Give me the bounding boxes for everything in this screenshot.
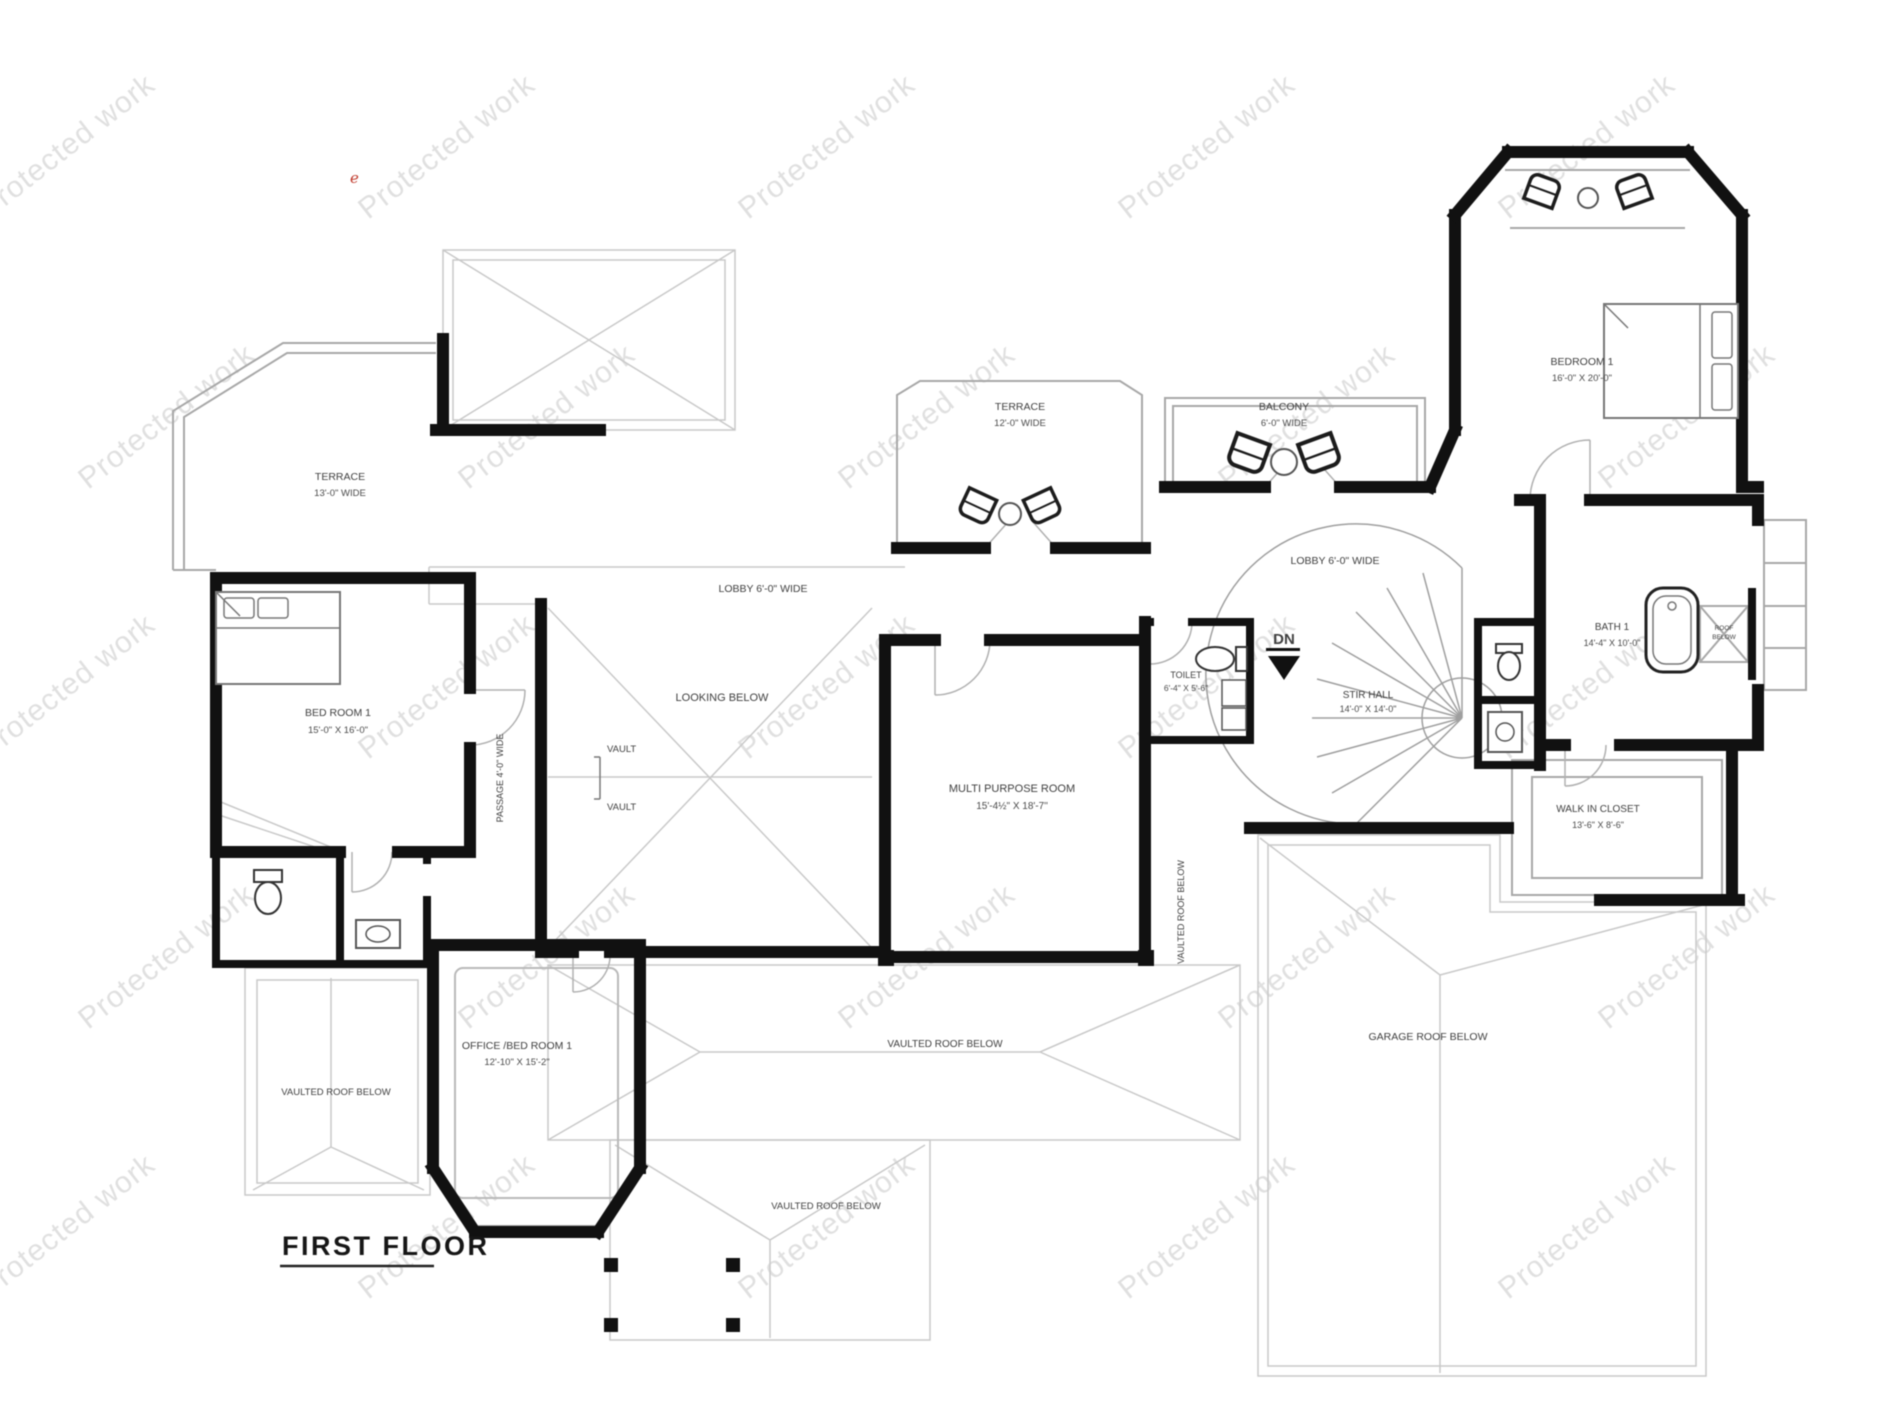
label-terrace-center-name: TERRACE: [995, 401, 1045, 413]
table-icon: [1271, 449, 1297, 475]
label-terrace-left-name: TERRACE: [315, 471, 365, 483]
label-vaulted-roof-vertical: VAULTED ROOF BELOW: [1176, 860, 1186, 964]
label-stair-hall-dim: 14'-0" X 14'-0": [1340, 704, 1397, 714]
floor-plan-canvas: Protected work Protected work Protected …: [0, 0, 1900, 1422]
label-balcony-name: BALCONY: [1259, 401, 1309, 413]
chair-icon: [958, 488, 997, 525]
label-lobby-right: LOBBY 6'-0" WIDE: [1291, 555, 1380, 567]
label-bedroom-right-dim: 16'-0" X 20'-0": [1552, 373, 1612, 384]
title-block: FIRST FLOOR: [280, 1231, 489, 1266]
label-toilet-dim: 6'-4" X 5'-6": [1164, 683, 1208, 693]
label-looking-below: LOOKING BELOW: [676, 692, 770, 704]
page-title: FIRST FLOOR: [282, 1231, 489, 1261]
labels: TERRACE 13'-0" WIDE BED ROOM 1 15'-0" X …: [281, 356, 1736, 1212]
label-balcony-dim: 6'-0" WIDE: [1261, 418, 1307, 429]
label-roof-niche-line2: BELOW: [1712, 634, 1736, 641]
bed-left: [216, 592, 340, 684]
label-office-bedroom-name: OFFICE /BED ROOM 1: [462, 1040, 572, 1052]
label-multi-purpose-dim: 15'-4½" X 18'-7": [976, 801, 1048, 812]
sink-icon: [1488, 712, 1522, 752]
chair-icon: [1227, 433, 1270, 474]
label-vaulted-roof-center: VAULTED ROOF BELOW: [887, 1039, 1003, 1050]
stray-red-mark: e: [350, 169, 359, 187]
label-passage: PASSAGE 4'-0" WIDE: [495, 734, 505, 823]
floor-plan-svg: TERRACE 13'-0" WIDE BED ROOM 1 15'-0" X …: [0, 0, 1900, 1422]
label-dn: DN: [1273, 631, 1295, 648]
label-terrace-left-dim: 13'-0" WIDE: [314, 488, 366, 499]
label-lobby-left: LOBBY 6'-0" WIDE: [719, 583, 808, 595]
chair-icon: [1298, 433, 1341, 474]
label-bedroom-left-dim: 15'-0" X 16'-0": [308, 725, 368, 736]
label-vault-upper: VAULT: [607, 744, 636, 755]
toilet-icon: [254, 870, 282, 914]
down-arrow-icon: [1266, 648, 1300, 680]
chair-icon: [1615, 173, 1652, 209]
label-stair-hall-name: STIR HALL: [1343, 690, 1394, 701]
toilet-icon: [1496, 644, 1522, 680]
label-bedroom-right-name: BEDROOM 1: [1550, 356, 1613, 368]
chair-icon: [1023, 488, 1062, 525]
label-garage-roof: GARAGE ROOF BELOW: [1368, 1031, 1487, 1043]
bathtub-icon: [1646, 588, 1698, 672]
bed-right: [1604, 304, 1738, 418]
label-bedroom-left-name: BED ROOM 1: [305, 707, 371, 719]
label-walk-in-closet-name: WALK IN CLOSET: [1556, 804, 1640, 815]
table-icon: [1578, 188, 1598, 208]
label-multi-purpose-name: MULTI PURPOSE ROOM: [949, 783, 1075, 795]
wall-posts: [604, 950, 1154, 1332]
label-bath-name: BATH 1: [1595, 622, 1630, 633]
label-terrace-center-dim: 12'-0" WIDE: [994, 418, 1046, 429]
label-bath-dim: 14'-4" X 10'-0": [1584, 638, 1641, 648]
label-vault-lower: VAULT: [607, 802, 636, 813]
label-walk-in-closet-dim: 13'-6" X 8'-6": [1572, 820, 1624, 830]
label-vaulted-roof-bottom: VAULTED ROOF BELOW: [771, 1201, 880, 1212]
table-icon: [999, 503, 1021, 525]
chair-icon: [1524, 173, 1561, 209]
vault-bracket: [594, 757, 600, 799]
label-roof-niche-line1: ROOF: [1715, 625, 1734, 632]
label-toilet-name: TOILET: [1170, 670, 1202, 680]
label-vaulted-roof-left: VAULTED ROOF BELOW: [281, 1087, 390, 1098]
walls: [216, 152, 1758, 1232]
sink-icon: [356, 920, 400, 948]
label-office-bedroom-dim: 12'-10" X 15'-2": [484, 1057, 549, 1068]
